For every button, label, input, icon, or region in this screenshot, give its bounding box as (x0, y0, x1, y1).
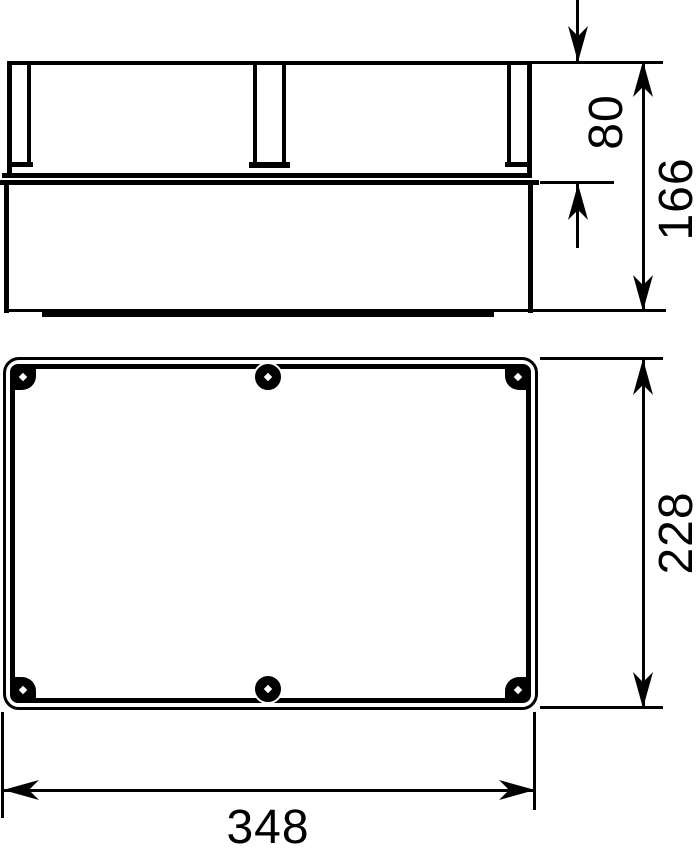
lid-clip-right-bottom (505, 162, 532, 167)
lid-clip-left-inner-line (27, 61, 31, 167)
screw-hole-icon (264, 685, 272, 693)
screw-boss-top-center (253, 362, 283, 392)
dim-80-leader-lower (576, 184, 579, 248)
dim-228-line (642, 359, 645, 708)
screw-hole-icon (514, 373, 522, 381)
screw-boss-bottom-right (505, 677, 531, 703)
flange-lower-line (0, 180, 539, 185)
dim-348-label: 348 (208, 802, 328, 850)
technical-drawing: 80 166 (0, 0, 696, 850)
lid-clip-left-bottom (7, 162, 33, 167)
lid-clip-middle-left-line (253, 61, 257, 167)
screw-boss-top-right (505, 364, 531, 390)
screw-hole-icon (264, 373, 272, 381)
base-right-edge (528, 185, 533, 313)
extension-line-plan-right (533, 712, 536, 810)
dim-228-label: 228 (651, 473, 696, 593)
dim-80-label: 80 (581, 62, 633, 182)
dim-348-line (3, 789, 535, 792)
extension-line-plan-left (1, 712, 4, 818)
screw-boss-bottom-left (10, 677, 36, 703)
plan-inner-outline (10, 364, 531, 703)
screw-hole-icon (19, 686, 27, 694)
lid-right-edge (527, 61, 532, 178)
base-left-edge (4, 185, 9, 313)
dim-166-line (642, 61, 645, 311)
screw-hole-icon (514, 686, 522, 694)
lid-clip-right-inner-line (507, 61, 511, 167)
lid-clip-middle-bottom (249, 162, 290, 168)
lid-top-edge (7, 61, 531, 65)
flange-upper-line (2, 173, 532, 178)
screw-hole-icon (19, 373, 27, 381)
dim-166-label: 166 (651, 139, 696, 259)
screw-boss-bottom-center (253, 674, 283, 704)
lid-clip-middle-right-line (282, 61, 286, 167)
extension-line-base-bottom (498, 309, 666, 312)
lid-left-edge (7, 61, 12, 178)
base-bottom-foot (42, 310, 494, 317)
